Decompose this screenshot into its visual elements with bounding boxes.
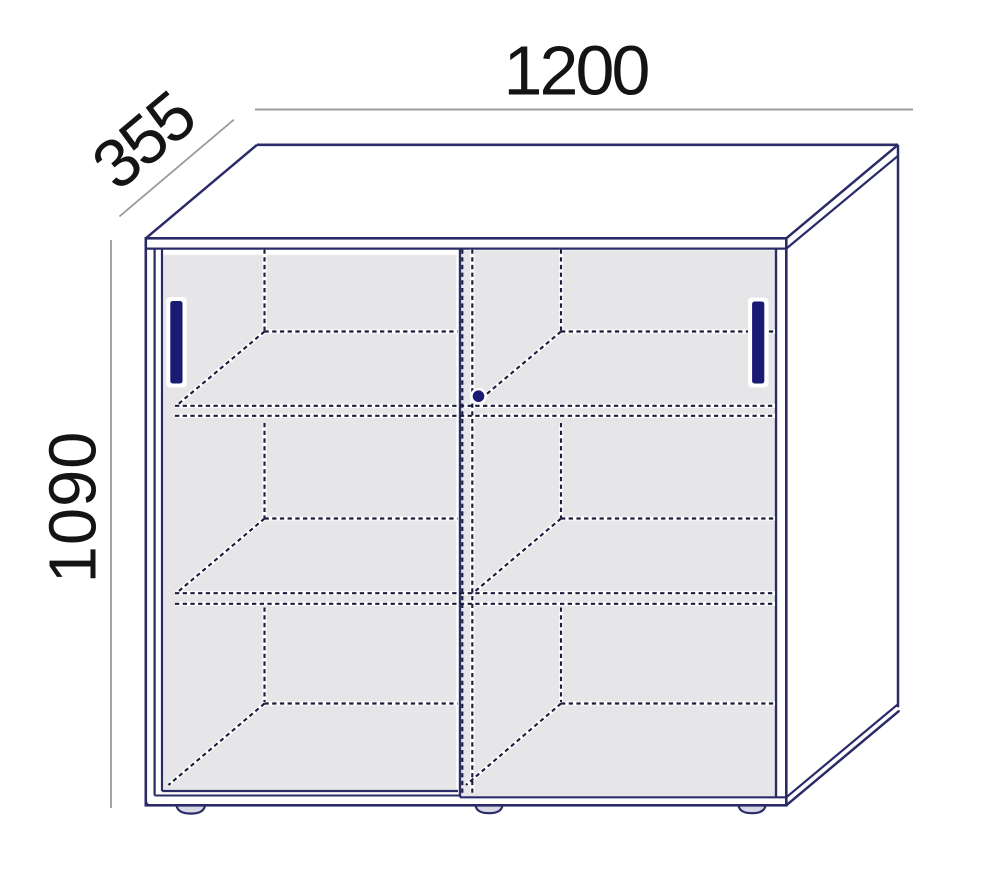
svg-text:1090: 1090 <box>36 431 111 584</box>
svg-text:1200: 1200 <box>503 31 648 109</box>
